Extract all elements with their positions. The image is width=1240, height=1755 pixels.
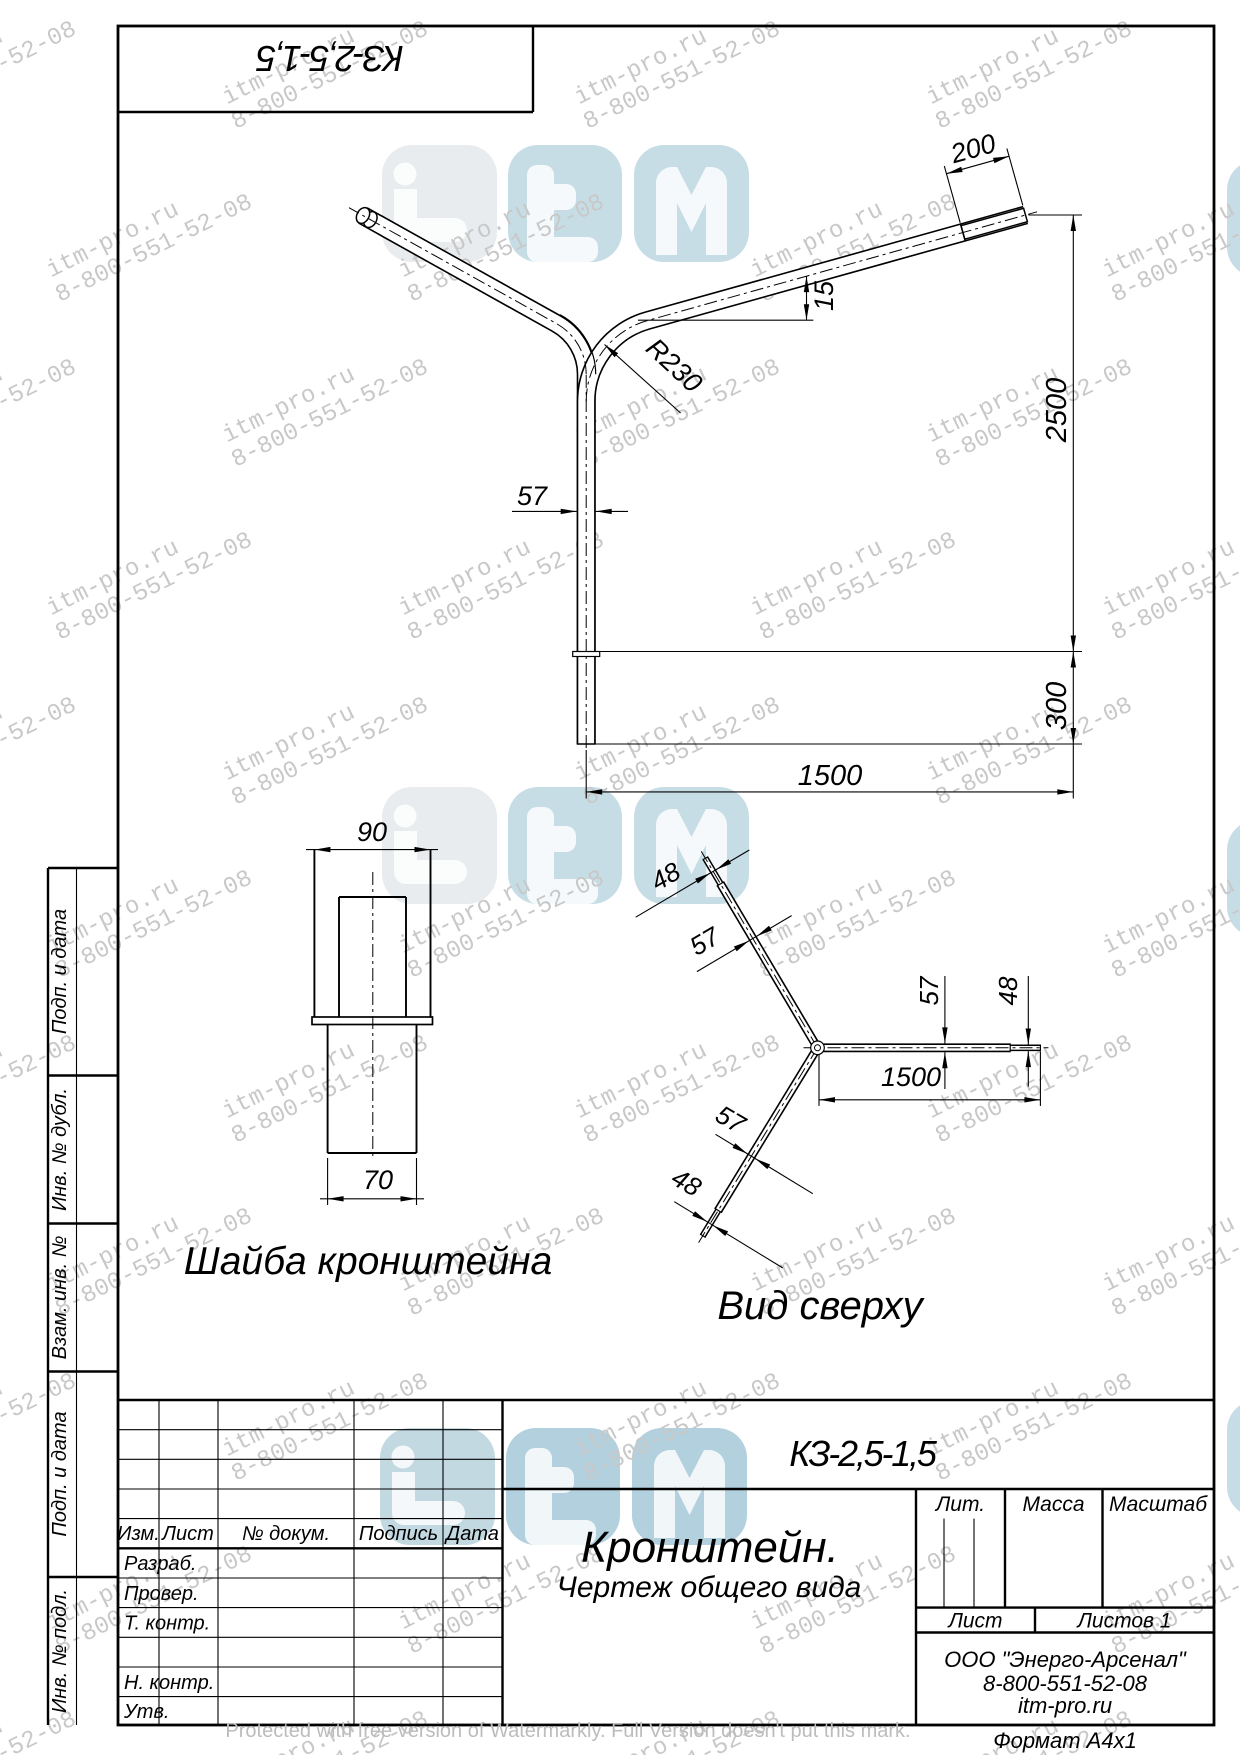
svg-text:Разраб.: Разраб. <box>124 1553 196 1575</box>
svg-text:Провер.: Провер. <box>124 1583 199 1605</box>
svg-text:Утв.: Утв. <box>123 1701 169 1723</box>
svg-text:Лит.: Лит. <box>934 1493 985 1516</box>
svg-text:57: 57 <box>914 975 944 1005</box>
svg-text:Кронштейн.: Кронштейн. <box>581 1523 839 1572</box>
svg-text:Чертеж общего вида: Чертеж общего вида <box>557 1571 862 1604</box>
svg-text:Н. контр.: Н. контр. <box>124 1672 214 1694</box>
svg-text:Инв. № подл.: Инв. № подл. <box>49 1589 71 1713</box>
svg-text:48: 48 <box>993 976 1023 1005</box>
svg-text:Шайба кронштейна: Шайба кронштейна <box>184 1240 552 1283</box>
svg-text:Вид сверху: Вид сверху <box>717 1284 925 1328</box>
svg-text:57: 57 <box>710 1099 751 1140</box>
svg-text:Подп. и дата: Подп. и дата <box>49 1411 71 1536</box>
svg-text:Изм.: Изм. <box>117 1523 160 1545</box>
svg-text:ООО "Энерго-Арсенал": ООО "Энерго-Арсенал" <box>944 1647 1187 1672</box>
svg-text:Масштаб: Масштаб <box>1109 1493 1208 1516</box>
svg-text:Лист: Лист <box>160 1523 214 1545</box>
svg-text:Взам. инв. №: Взам. инв. № <box>49 1236 71 1360</box>
svg-text:Дата: Дата <box>444 1523 499 1545</box>
svg-text:Масса: Масса <box>1022 1493 1084 1516</box>
svg-text:Protected with free version of: Protected with free version of Watermark… <box>225 1720 910 1742</box>
svg-text:Формат А4х1: Формат А4х1 <box>993 1728 1137 1753</box>
svg-text:КЗ-2,5-1,5: КЗ-2,5-1,5 <box>255 38 404 79</box>
svg-text:8-800-551-52-08: 8-800-551-52-08 <box>0 692 81 812</box>
svg-text:Лист: Лист <box>946 1610 1002 1633</box>
svg-text:90: 90 <box>357 817 387 847</box>
svg-text:1500: 1500 <box>881 1062 941 1092</box>
svg-text:8-800-551-52-08: 8-800-551-52-08 <box>0 354 81 474</box>
svg-text:8-800-551-52-08: 8-800-551-52-08 <box>0 16 81 136</box>
svg-text:Т. контр.: Т. контр. <box>124 1613 210 1635</box>
svg-text:№ докум.: № докум. <box>242 1523 330 1545</box>
svg-text:57: 57 <box>684 920 725 961</box>
svg-text:itm-pro.ru: itm-pro.ru <box>1018 1693 1112 1718</box>
svg-text:15: 15 <box>809 280 839 311</box>
svg-text:КЗ-2,5-1,5: КЗ-2,5-1,5 <box>789 1433 938 1474</box>
svg-text:70: 70 <box>363 1165 393 1195</box>
svg-text:300: 300 <box>1041 682 1073 730</box>
svg-text:Листов 1: Листов 1 <box>1076 1610 1172 1633</box>
svg-text:2500: 2500 <box>1041 378 1073 444</box>
svg-text:48: 48 <box>666 1162 707 1203</box>
svg-text:1500: 1500 <box>798 760 863 792</box>
svg-text:Подп. и дата: Подп. и дата <box>49 909 71 1034</box>
svg-text:57: 57 <box>517 481 548 511</box>
svg-text:Подпись: Подпись <box>359 1523 438 1545</box>
svg-text:200: 200 <box>946 128 998 169</box>
svg-text:Инв. № дубл.: Инв. № дубл. <box>49 1088 71 1211</box>
